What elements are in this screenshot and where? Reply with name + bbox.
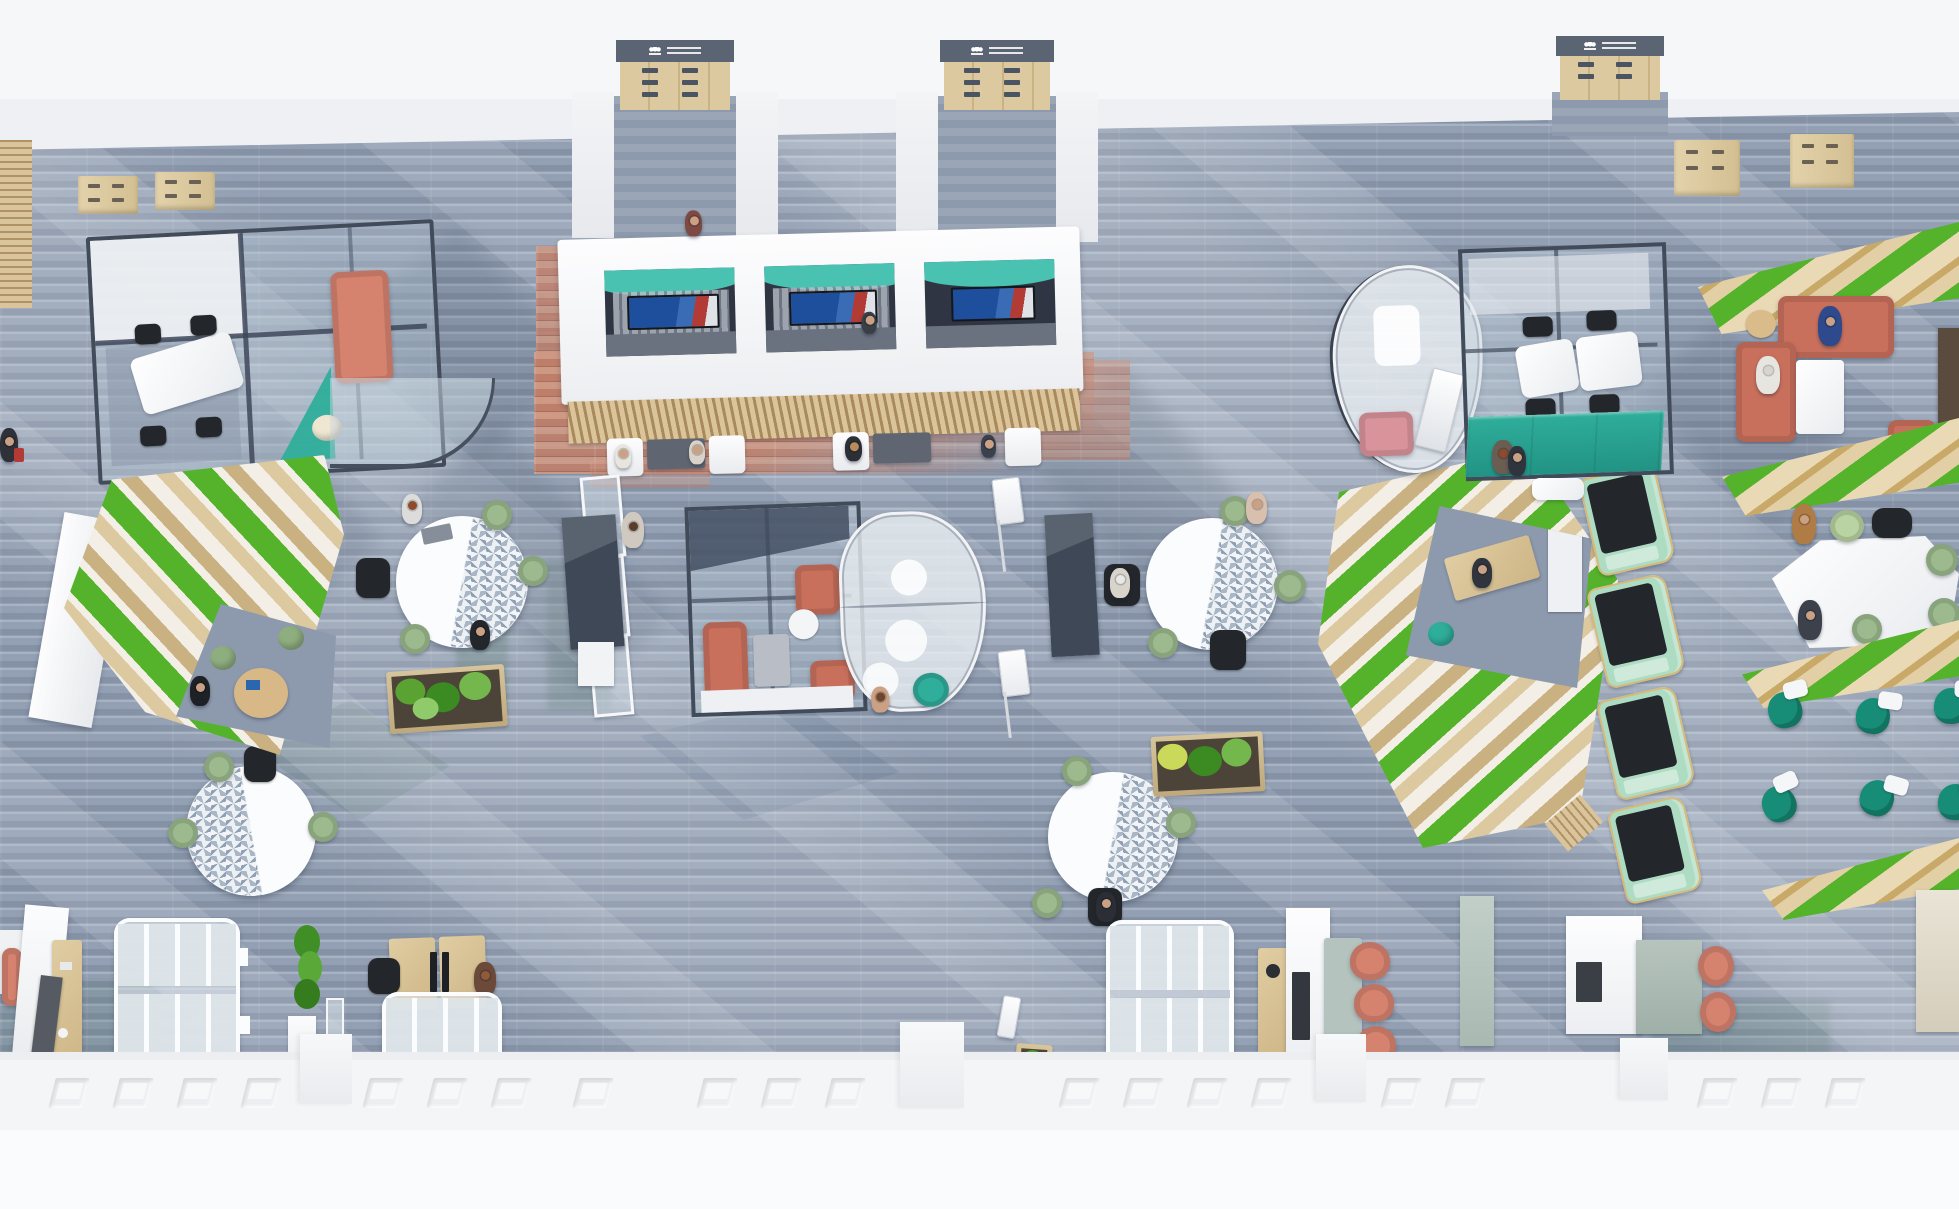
sage-chair[interactable] bbox=[1830, 510, 1864, 542]
pouf-silhouette bbox=[890, 559, 927, 596]
right-moss-pod bbox=[1318, 448, 1618, 848]
sage-tub-chair[interactable] bbox=[1148, 628, 1178, 658]
sage-tub-chair[interactable] bbox=[518, 556, 548, 586]
office-chair[interactable] bbox=[356, 558, 390, 598]
focus-booth bbox=[1106, 920, 1234, 1072]
center-pod bbox=[684, 489, 992, 727]
emerald-task-chair[interactable] bbox=[1933, 779, 1959, 826]
wall-pillar bbox=[300, 1034, 352, 1104]
sage-tub-chair[interactable] bbox=[168, 818, 198, 848]
storage-cabinet bbox=[1790, 134, 1854, 188]
storage-cabinet bbox=[78, 176, 138, 214]
emerald-task-chair[interactable] bbox=[1849, 691, 1897, 740]
chair[interactable] bbox=[134, 323, 161, 344]
booth-desk bbox=[606, 331, 737, 356]
planter-trough bbox=[1151, 731, 1266, 797]
news-screen[interactable] bbox=[951, 285, 1036, 321]
green-pouf[interactable] bbox=[210, 646, 236, 670]
meeting-table bbox=[1575, 331, 1643, 392]
glass-room bbox=[1458, 242, 1674, 481]
salmon-sofa[interactable] bbox=[330, 270, 394, 385]
blush-armchair[interactable] bbox=[1359, 411, 1415, 457]
media-hub bbox=[557, 198, 1092, 474]
left-moss-pod bbox=[46, 452, 344, 764]
flipchart-easel[interactable] bbox=[997, 648, 1030, 697]
white-plinth bbox=[701, 686, 854, 713]
sage-tub-chair[interactable] bbox=[482, 500, 512, 530]
meeting-table bbox=[1514, 338, 1580, 399]
sign-text-lines bbox=[1602, 42, 1636, 50]
terracotta-armchair[interactable] bbox=[794, 564, 840, 616]
door-room-2 bbox=[940, 40, 1054, 110]
dome-table-group bbox=[186, 766, 316, 896]
papers bbox=[60, 962, 72, 970]
sage-tub-chair[interactable] bbox=[1274, 570, 1306, 602]
wall-pillar bbox=[1620, 1038, 1668, 1100]
person bbox=[685, 210, 703, 236]
room-sign bbox=[1556, 36, 1664, 56]
sign-text-lines bbox=[989, 47, 1023, 55]
tall-plant bbox=[292, 925, 324, 1021]
person bbox=[1756, 356, 1780, 394]
room-sign bbox=[616, 40, 734, 62]
media-totem bbox=[561, 514, 624, 649]
wall-pillar bbox=[900, 1022, 964, 1108]
window-wall bbox=[0, 1052, 1959, 1209]
roof-glare bbox=[1468, 253, 1650, 315]
person bbox=[1792, 504, 1816, 544]
people-group-icon bbox=[649, 47, 661, 55]
dome-table-group bbox=[1146, 518, 1278, 650]
totem-base bbox=[578, 642, 614, 686]
chair[interactable] bbox=[195, 416, 222, 437]
dark-chair[interactable] bbox=[1872, 508, 1912, 538]
cream-cabinet bbox=[1916, 890, 1959, 1032]
shelf-unit bbox=[1548, 524, 1582, 612]
sage-desk bbox=[1636, 940, 1702, 1034]
sage-tub-chair[interactable] bbox=[1032, 888, 1062, 918]
person bbox=[474, 962, 496, 996]
focus-booth bbox=[114, 918, 240, 1068]
pouf-silhouette bbox=[884, 619, 927, 662]
planter-trough bbox=[386, 664, 508, 734]
red-bag bbox=[14, 448, 24, 462]
teal-ceiling bbox=[924, 259, 1056, 289]
office-chair[interactable] bbox=[368, 958, 400, 994]
storage-cabinet bbox=[1674, 140, 1740, 196]
sage-tub-chair[interactable] bbox=[1062, 756, 1092, 786]
media-booth bbox=[764, 263, 896, 352]
office-chair[interactable] bbox=[1210, 630, 1246, 670]
news-screen[interactable] bbox=[627, 294, 720, 330]
white-cabinet bbox=[1566, 916, 1642, 1034]
round-side-table bbox=[1746, 310, 1776, 338]
side-table bbox=[788, 609, 819, 640]
canopy-rib bbox=[840, 601, 986, 609]
flipchart-easel[interactable] bbox=[991, 476, 1024, 525]
laptop[interactable] bbox=[246, 680, 260, 690]
people-group-icon bbox=[1584, 42, 1596, 50]
round-wood-table bbox=[234, 668, 288, 718]
coffee-table bbox=[1796, 360, 1844, 434]
desk bbox=[1444, 535, 1541, 602]
coral-chair[interactable] bbox=[1350, 942, 1390, 980]
sage-chair[interactable] bbox=[1852, 614, 1882, 644]
office-floor-render bbox=[0, 0, 1959, 1209]
door-room-3 bbox=[1556, 36, 1664, 100]
teal-pouf[interactable] bbox=[1428, 622, 1454, 646]
timber-slat-screen bbox=[0, 140, 32, 308]
dome-table-group bbox=[396, 516, 528, 648]
chair[interactable] bbox=[190, 315, 217, 336]
pod-roof-panel bbox=[90, 233, 245, 343]
person bbox=[190, 676, 210, 706]
coral-chair[interactable] bbox=[1354, 984, 1394, 1022]
sage-tub-chair[interactable] bbox=[308, 812, 338, 842]
chair[interactable] bbox=[140, 425, 167, 446]
person bbox=[1110, 568, 1130, 598]
wall-pillar bbox=[1316, 1034, 1366, 1102]
booth-desk bbox=[926, 323, 1057, 348]
person bbox=[402, 494, 422, 524]
coral-chair[interactable] bbox=[1700, 992, 1736, 1032]
sage-tub-chair[interactable] bbox=[400, 624, 430, 654]
cup bbox=[58, 1028, 68, 1038]
sage-chair[interactable] bbox=[1926, 544, 1958, 576]
dome-canopy-table bbox=[186, 766, 316, 896]
booth-desk bbox=[766, 327, 897, 352]
booth-handle-post bbox=[238, 948, 248, 966]
chair[interactable] bbox=[1522, 316, 1553, 337]
room-sign bbox=[940, 40, 1054, 62]
sage-tub-chair[interactable] bbox=[1166, 808, 1196, 838]
timber-doors[interactable] bbox=[944, 62, 1050, 110]
sign-text-lines bbox=[667, 47, 701, 55]
sage-cabinet bbox=[1460, 896, 1494, 1046]
person bbox=[1246, 492, 1267, 524]
timber-doors[interactable] bbox=[620, 62, 730, 110]
person bbox=[1096, 892, 1116, 922]
table-corner bbox=[1532, 478, 1584, 500]
door-room-1 bbox=[616, 40, 734, 110]
media-booth bbox=[924, 259, 1056, 348]
coral-chair[interactable] bbox=[1698, 946, 1734, 986]
person bbox=[871, 686, 890, 713]
storage-cabinet bbox=[155, 172, 215, 210]
green-pouf[interactable] bbox=[278, 626, 304, 650]
bench-table bbox=[753, 634, 791, 687]
media-totem bbox=[1044, 513, 1099, 657]
table-silhouette bbox=[1373, 305, 1421, 367]
timber-doors[interactable] bbox=[1560, 56, 1660, 100]
speaker-puck bbox=[1266, 964, 1280, 978]
person bbox=[1798, 600, 1822, 640]
people-group-icon bbox=[971, 47, 983, 55]
booth-handle-post bbox=[240, 1016, 250, 1034]
emerald-task-chair[interactable] bbox=[1929, 683, 1959, 728]
person bbox=[1472, 558, 1492, 588]
person bbox=[1818, 306, 1842, 346]
person bbox=[470, 620, 490, 650]
person bbox=[1508, 446, 1526, 476]
media-booth bbox=[604, 267, 736, 356]
person bbox=[622, 512, 644, 548]
far-right-lounge bbox=[1734, 290, 1959, 450]
chair[interactable] bbox=[1586, 310, 1617, 331]
